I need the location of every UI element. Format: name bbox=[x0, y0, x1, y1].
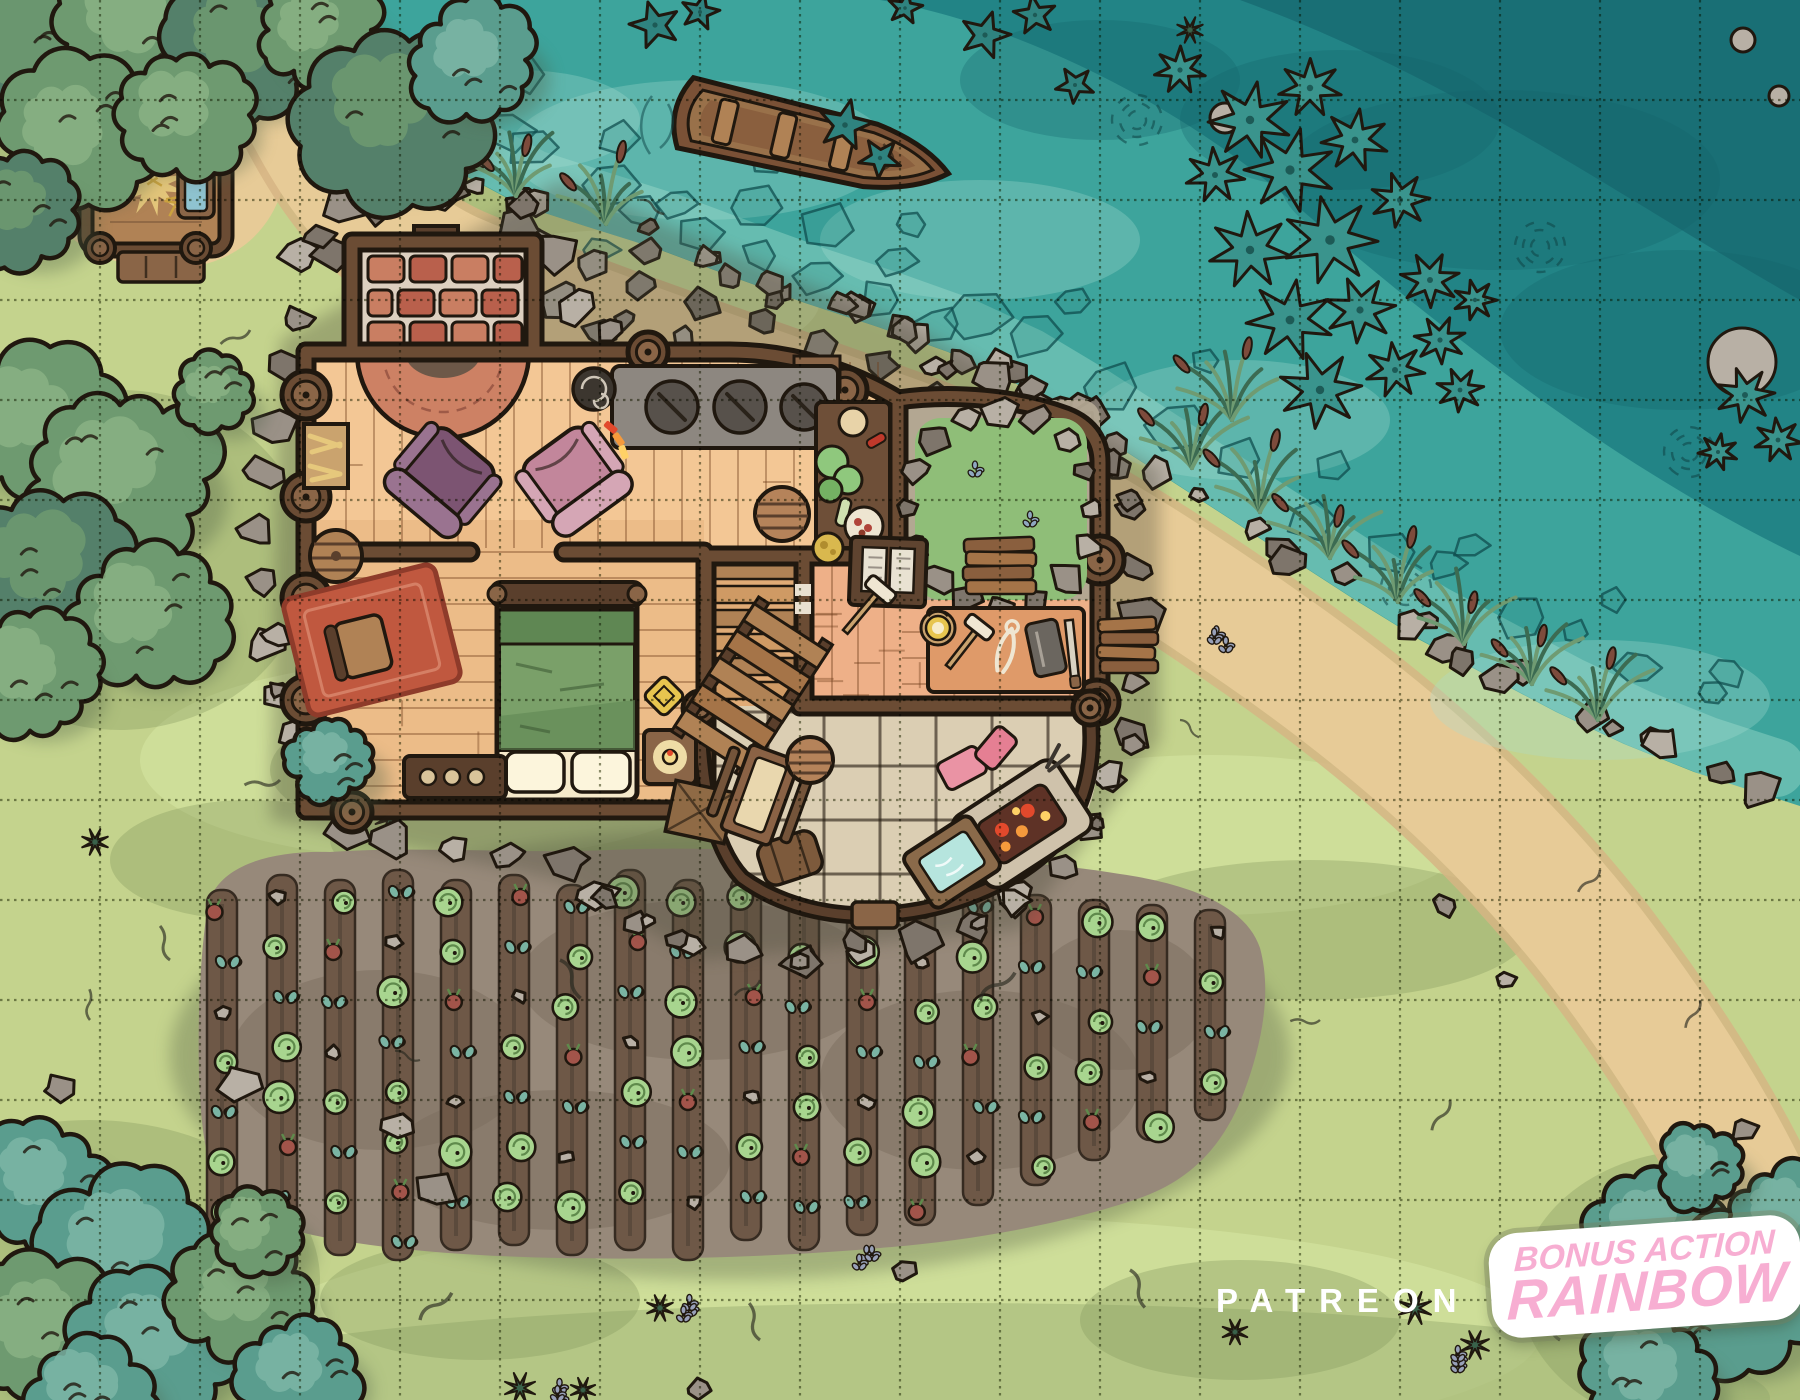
radish bbox=[746, 989, 762, 1005]
cabbage bbox=[1144, 1112, 1174, 1142]
cabbage-dot bbox=[226, 1061, 230, 1065]
cabbage bbox=[671, 1036, 702, 1067]
door-threshold bbox=[795, 584, 811, 596]
tower-post-center bbox=[1087, 705, 1094, 712]
cabbage bbox=[556, 1191, 587, 1222]
flower-center bbox=[682, 1313, 686, 1317]
cabbage bbox=[1201, 1070, 1226, 1095]
cabbage-dot bbox=[681, 1001, 685, 1005]
post-inner bbox=[188, 240, 204, 256]
plant-center bbox=[1073, 83, 1077, 87]
cabbage bbox=[1025, 1055, 1049, 1079]
cabbage bbox=[553, 994, 578, 1019]
plant-center bbox=[1458, 388, 1463, 393]
flower-petal bbox=[681, 1306, 686, 1314]
barrel bbox=[310, 530, 362, 582]
patreon-watermark: PATREON bbox=[1216, 1282, 1470, 1320]
cabbage bbox=[666, 987, 697, 1018]
radish bbox=[512, 889, 528, 905]
flower-petal bbox=[1223, 637, 1228, 645]
lantern bbox=[921, 611, 955, 645]
cabbage-dot bbox=[1037, 1066, 1041, 1070]
radish bbox=[909, 1204, 925, 1220]
flower-center bbox=[1212, 635, 1216, 639]
courtyard-flower bbox=[972, 461, 977, 469]
flower-petal bbox=[869, 1245, 874, 1253]
plant-center bbox=[652, 22, 657, 27]
cabbage-dot bbox=[927, 1011, 931, 1015]
cabbage-dot bbox=[287, 1046, 291, 1050]
plant-center bbox=[1246, 116, 1254, 124]
radish bbox=[859, 994, 875, 1010]
tower-post-center bbox=[303, 392, 310, 399]
plant-center bbox=[1307, 85, 1313, 91]
gold-bowl bbox=[813, 533, 843, 563]
cabbage bbox=[501, 1035, 525, 1059]
battle-map: PATREON BONUS ACTION RAINBOW bbox=[0, 0, 1800, 1400]
tower-post-center bbox=[842, 387, 849, 394]
cabbage bbox=[326, 1191, 349, 1214]
cabbage-dot bbox=[565, 1006, 569, 1010]
cabbage bbox=[263, 1081, 295, 1113]
cabbage bbox=[208, 1149, 234, 1175]
tower-post-center bbox=[645, 349, 652, 356]
scroll-shelf bbox=[404, 756, 506, 798]
stone bbox=[1051, 565, 1081, 592]
cabbage bbox=[1200, 971, 1223, 994]
cabbage-dot bbox=[631, 1191, 635, 1195]
cabbage bbox=[493, 1183, 521, 1211]
cabbage-dot bbox=[636, 1091, 640, 1095]
flower-center bbox=[688, 1302, 692, 1306]
cabbage-dot bbox=[571, 1206, 575, 1210]
cabbage-dot bbox=[455, 1151, 459, 1155]
radish bbox=[630, 934, 646, 950]
cabbage bbox=[794, 1094, 820, 1120]
plant-center bbox=[1427, 277, 1433, 283]
stone bbox=[1139, 1072, 1155, 1082]
flower-center bbox=[857, 1261, 861, 1265]
flower-petal bbox=[555, 1386, 560, 1394]
flower-center bbox=[870, 1253, 874, 1257]
radish bbox=[446, 994, 462, 1010]
cabbage-dot bbox=[448, 901, 452, 905]
pillow bbox=[506, 752, 564, 792]
radish bbox=[206, 904, 222, 920]
brick bbox=[410, 256, 446, 282]
door-threshold bbox=[795, 602, 811, 614]
patio-step bbox=[852, 902, 898, 928]
cabbage-dot bbox=[393, 991, 397, 995]
wood-pile bbox=[1097, 616, 1158, 673]
brick bbox=[368, 290, 392, 316]
cabbage-dot bbox=[1089, 1071, 1093, 1075]
cabbage bbox=[910, 1147, 941, 1178]
radish bbox=[1084, 1114, 1100, 1130]
cabbage bbox=[737, 1134, 762, 1159]
stone bbox=[215, 1006, 230, 1019]
flower-petal bbox=[1455, 1345, 1460, 1353]
firewood-box bbox=[304, 424, 348, 488]
plant-center bbox=[1246, 246, 1254, 254]
cabbage-dot bbox=[580, 956, 584, 960]
cabbage bbox=[273, 1033, 301, 1061]
flower-center bbox=[556, 1393, 560, 1397]
cabbage-dot bbox=[1043, 1166, 1047, 1170]
cabbage bbox=[441, 940, 465, 964]
brick bbox=[398, 290, 434, 316]
cabbage-dot bbox=[1214, 1081, 1218, 1085]
plant-center bbox=[1286, 316, 1295, 325]
plant-center bbox=[842, 122, 848, 128]
cabbage bbox=[1076, 1059, 1102, 1085]
radish bbox=[280, 1139, 296, 1155]
cabbage-dot bbox=[919, 1111, 923, 1115]
flower-petal bbox=[1212, 628, 1217, 636]
cabbage-dot bbox=[337, 1201, 341, 1205]
cabbage-dot bbox=[985, 1006, 989, 1010]
stone bbox=[559, 1152, 573, 1162]
plant-center bbox=[1316, 386, 1324, 394]
radish bbox=[962, 1049, 978, 1065]
radish bbox=[325, 944, 341, 960]
cabbage bbox=[568, 945, 592, 969]
plant-center bbox=[982, 32, 987, 37]
cabbage-dot bbox=[972, 956, 976, 960]
brick bbox=[452, 256, 488, 282]
flower-petal bbox=[864, 1245, 869, 1253]
onion bbox=[839, 408, 867, 436]
cabbage bbox=[264, 935, 287, 958]
submerged-stone bbox=[1498, 599, 1543, 639]
brick bbox=[440, 290, 476, 316]
cabbage-dot bbox=[687, 1051, 691, 1055]
flower-center bbox=[1224, 644, 1228, 648]
stone bbox=[1707, 762, 1734, 783]
cabbage bbox=[622, 1078, 651, 1107]
cabbage-dot bbox=[749, 1146, 753, 1150]
cabbage-dot bbox=[1159, 1126, 1163, 1130]
plant-center bbox=[1212, 172, 1218, 178]
cabbage-dot bbox=[275, 946, 279, 950]
tree-canopy-highlight bbox=[138, 71, 209, 137]
plant-center bbox=[903, 6, 907, 10]
cabbage bbox=[1138, 913, 1166, 941]
cabbage bbox=[434, 888, 463, 917]
cabbage-dot bbox=[507, 1196, 511, 1200]
plant-center bbox=[1742, 392, 1748, 398]
plant-center bbox=[1356, 306, 1363, 313]
flower-center bbox=[1456, 1353, 1460, 1357]
brick bbox=[368, 256, 404, 282]
plant-center bbox=[1285, 165, 1294, 174]
cabbage-dot bbox=[513, 1046, 517, 1050]
stair-step bbox=[706, 586, 802, 603]
bonus-action-rainbow-logo: BONUS ACTION RAINBOW bbox=[1504, 1226, 1789, 1326]
cabbage bbox=[324, 1090, 348, 1114]
cabbage bbox=[333, 891, 356, 914]
plant-center bbox=[1473, 298, 1477, 302]
cabbage bbox=[915, 1000, 938, 1023]
cabbage-dot bbox=[1212, 981, 1216, 985]
cabbage bbox=[973, 995, 998, 1020]
cabbage bbox=[378, 977, 409, 1008]
map-canvas bbox=[0, 0, 1800, 1400]
water-boulder bbox=[1769, 86, 1789, 106]
plant-center bbox=[1325, 235, 1335, 245]
cabbage bbox=[386, 1081, 409, 1104]
plant-center bbox=[1776, 438, 1781, 443]
cabbage bbox=[1032, 1156, 1054, 1178]
cabbage-dot bbox=[807, 1106, 811, 1110]
nightstand bbox=[644, 730, 696, 784]
courtyard-flower bbox=[1027, 511, 1032, 519]
cabbage-dot bbox=[221, 1161, 225, 1165]
radish bbox=[1144, 969, 1160, 985]
cabbage-dot bbox=[1151, 926, 1155, 930]
cabbage-dot bbox=[344, 901, 348, 905]
plant-center bbox=[1033, 13, 1037, 17]
book-stack bbox=[963, 537, 1036, 594]
radish bbox=[565, 1049, 581, 1065]
stone bbox=[447, 1096, 464, 1107]
water-boulder bbox=[1731, 28, 1755, 52]
cabbage bbox=[507, 1133, 535, 1161]
plant-center bbox=[1716, 450, 1720, 454]
brick bbox=[494, 256, 522, 282]
flower-petal bbox=[857, 1254, 862, 1262]
flower-petal bbox=[687, 1294, 692, 1302]
cabbage-dot bbox=[808, 1056, 812, 1060]
cabbage-dot bbox=[453, 951, 457, 955]
round-stool bbox=[787, 737, 833, 783]
plant-center bbox=[878, 156, 882, 160]
cabbage bbox=[844, 1139, 870, 1165]
stone bbox=[1050, 856, 1077, 879]
plant-center bbox=[1392, 367, 1398, 373]
fireplace bbox=[357, 226, 529, 438]
cabbage-dot bbox=[858, 1151, 862, 1155]
plant-center bbox=[1177, 67, 1182, 72]
plant-center bbox=[1437, 337, 1442, 342]
cabbage bbox=[957, 941, 988, 972]
greens bbox=[818, 478, 842, 502]
stone bbox=[623, 1036, 637, 1047]
plant-center bbox=[698, 10, 702, 14]
cabbage bbox=[440, 1136, 472, 1168]
cabbage-dot bbox=[336, 1101, 340, 1105]
stone bbox=[1211, 927, 1224, 939]
cabbage bbox=[1082, 907, 1112, 937]
cabbage-dot bbox=[925, 1161, 929, 1165]
cabbage-dot bbox=[521, 1146, 525, 1150]
plant-center bbox=[1352, 137, 1359, 144]
bed bbox=[488, 582, 646, 800]
radish bbox=[680, 1094, 696, 1110]
